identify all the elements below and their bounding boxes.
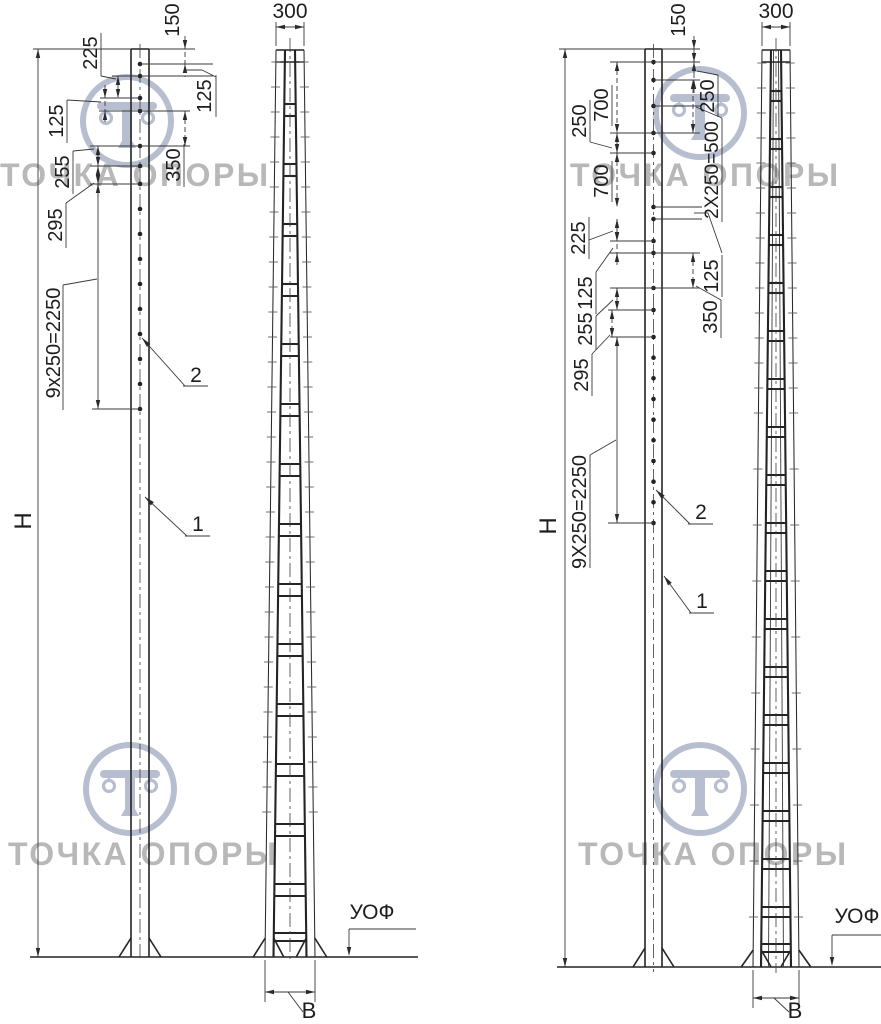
hole-dot (651, 397, 656, 402)
right-callout-shaft: 1 (696, 590, 708, 613)
dimension-arrow (183, 64, 187, 73)
dimension-arrow (295, 25, 304, 29)
left-chain-dim: 9x250=2250 (43, 288, 65, 399)
label-leader (589, 231, 613, 240)
watermark-text: ТОЧКА ОПОРЫ (8, 836, 279, 872)
hole-dot (651, 376, 656, 381)
hole-dot (651, 417, 656, 422)
left-base-width-dim: В (302, 998, 317, 1023)
hole-dot (651, 500, 656, 505)
right-base-width-dim: В (788, 998, 803, 1023)
left-dim-150: 150 (162, 3, 184, 36)
right-dim-225: 225 (568, 221, 590, 254)
dimension-arrow (692, 40, 696, 49)
brand-logo-icon (83, 77, 171, 165)
left-dim-255: 255 (52, 155, 74, 188)
base-gusset (633, 948, 645, 967)
label-leader (596, 300, 613, 316)
dimension-arrow (830, 957, 834, 966)
right-dim-250-right: 250 (697, 79, 719, 112)
dimension-arrow (615, 514, 619, 523)
right-dim-295: 295 (571, 358, 593, 391)
right-dim-250-left: 250 (569, 104, 591, 137)
hole-dot (651, 479, 656, 484)
base-gusset (253, 938, 265, 957)
label-leader (596, 248, 613, 272)
left-dim-295: 295 (45, 208, 67, 241)
pole-technical-drawing: ТОЧКА ОПОРЫ ТОЧКА ОПОРЫ ТОЧКА ОПОРЫ ТОЧК… (0, 0, 881, 1024)
facet-edge (295, 50, 307, 957)
dimension-arrow (615, 62, 619, 71)
dimension-arrow (610, 310, 614, 319)
right-dim-700-upper: 700 (591, 88, 613, 121)
dimension-arrow (615, 144, 619, 153)
dimension-arrow (36, 49, 40, 58)
left-top-width-dim: 300 (272, 0, 307, 23)
dimension-arrow (691, 124, 695, 133)
left-height-label: H (10, 512, 37, 529)
dimension-arrow (183, 137, 187, 146)
hole-dot (138, 382, 143, 387)
left-dim-125-left: 125 (46, 104, 68, 137)
brand-logo-icon (86, 745, 174, 833)
dimension-arrow (691, 279, 695, 288)
watermark-text: ТОЧКА ОПОРЫ (578, 836, 849, 872)
brand-logo-icon (656, 745, 744, 833)
right-dim-350: 350 (700, 300, 722, 333)
left-callout-holes: 2 (190, 364, 202, 387)
dimension-arrow (781, 25, 790, 29)
hole-dot (138, 282, 143, 287)
dimension-arrow (615, 253, 619, 262)
label-leader (590, 142, 612, 148)
right-chain-dim: 9Х250=2250 (569, 455, 591, 569)
right-top-width-dim: 300 (758, 0, 793, 23)
dimension-arrow (96, 400, 100, 409)
right-dim-125-left: 125 (575, 276, 597, 309)
dimension-arrow (691, 253, 695, 262)
dimension-arrow (753, 996, 762, 1000)
base-gusset (741, 950, 753, 967)
base-gusset (119, 938, 131, 957)
left-dim-225: 225 (80, 36, 102, 69)
hole-dot (138, 257, 143, 262)
dimension-arrow (615, 301, 619, 310)
right-dim-2x250: 2Х250=500 (702, 121, 723, 219)
dimension-arrow (563, 958, 567, 967)
dimension-arrow (36, 948, 40, 957)
dimension-arrow (692, 53, 696, 62)
label-leader (63, 279, 97, 285)
hole-dot (651, 459, 656, 464)
pole-drawing-svg: ТОЧКА ОПОРЫ ТОЧКА ОПОРЫ ТОЧКА ОПОРЫ ТОЧК… (0, 0, 881, 1024)
right-dim-255: 255 (575, 312, 597, 345)
hole-dot (138, 207, 143, 212)
dimension-arrow (610, 328, 614, 337)
dimension-arrow (183, 111, 187, 120)
facet-edge (274, 50, 286, 957)
dimension-arrow (615, 232, 619, 241)
left-dim-350: 350 (163, 148, 185, 181)
dimension-arrow (615, 133, 619, 142)
right-callout-holes: 2 (695, 501, 707, 524)
watermark-text: ТОЧКА ОПОРЫ (0, 157, 271, 193)
dimension-arrow (116, 89, 120, 98)
right-foundation-label: УОФ (835, 905, 880, 928)
base-gusset (799, 950, 811, 967)
right-dim-700-lower: 700 (591, 164, 613, 197)
label-leader (67, 100, 101, 102)
dimension-arrow (347, 947, 351, 956)
dimension-arrow (563, 49, 567, 58)
base-gusset (662, 948, 674, 967)
base-gusset (149, 938, 161, 957)
right-dim-150: 150 (668, 3, 690, 36)
hole-dot (138, 357, 143, 362)
hole-dot (651, 438, 656, 443)
dimension-arrow (265, 990, 274, 994)
left-dim-125-right: 125 (194, 79, 216, 112)
dimension-arrow (615, 124, 619, 133)
hole-dot (138, 332, 143, 337)
dimension-arrow (762, 25, 771, 29)
right-height-label: H (535, 517, 562, 534)
hole-dot (651, 355, 656, 360)
dimension-arrow (615, 198, 619, 207)
hole-dot (138, 232, 143, 237)
right-dim-125-right: 125 (701, 259, 723, 292)
dimension-arrow (615, 288, 619, 297)
dimension-arrow (183, 40, 187, 49)
leader-arrow (664, 576, 672, 585)
base-gusset (315, 938, 327, 957)
label-leader (590, 440, 616, 455)
left-callout-shaft: 1 (192, 513, 204, 536)
dimension-arrow (276, 25, 285, 29)
dimension-arrow (103, 89, 107, 98)
dimension-arrow (615, 219, 619, 228)
dimension-arrow (615, 337, 619, 346)
left-foundation-label: УОФ (350, 901, 395, 924)
dimension-arrow (306, 990, 315, 994)
hole-dot (138, 307, 143, 312)
